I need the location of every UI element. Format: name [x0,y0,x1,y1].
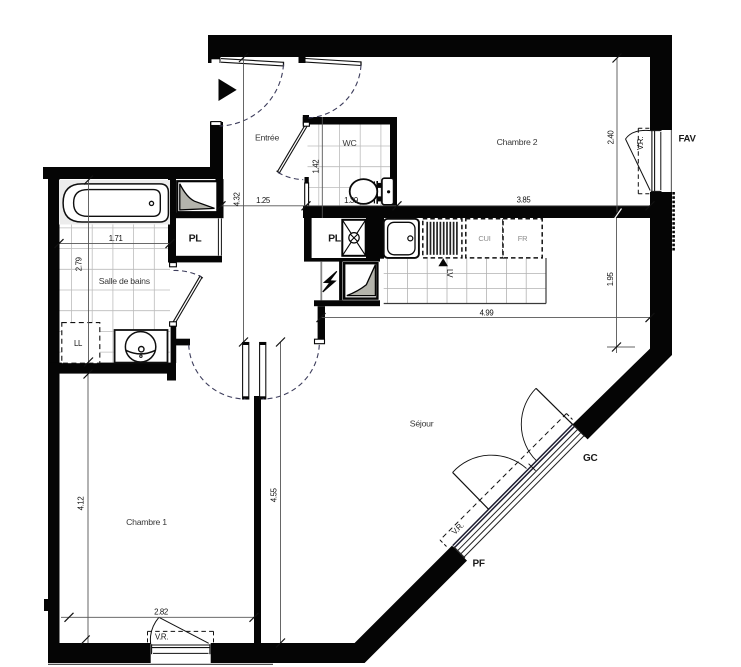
svg-text:WC: WC [343,138,357,148]
svg-text:PF: PF [473,559,485,570]
svg-text:Chambre 1: Chambre 1 [126,517,167,527]
svg-text:Salle de bains: Salle de bains [99,276,151,286]
svg-text:LL: LL [74,339,83,348]
svg-text:1.42: 1.42 [312,160,321,174]
svg-text:PL: PL [328,233,342,245]
svg-text:2.40: 2.40 [606,130,615,145]
svg-text:Séjour: Séjour [410,419,434,429]
svg-text:2.79: 2.79 [74,257,83,271]
svg-text:3.85: 3.85 [517,196,532,205]
svg-text:FR: FR [518,234,528,243]
svg-text:LV: LV [445,269,454,278]
svg-text:4.12: 4.12 [77,497,86,511]
svg-text:PL: PL [189,233,203,245]
svg-text:V.R.: V.R. [155,632,168,641]
svg-text:4.99: 4.99 [480,308,494,317]
svg-text:GC: GC [583,453,597,464]
svg-text:CUI: CUI [478,234,490,243]
svg-text:Entrée: Entrée [255,133,280,143]
svg-text:V.R.: V.R. [636,137,645,150]
svg-text:1.95: 1.95 [606,272,615,287]
svg-text:4.32: 4.32 [233,193,242,207]
svg-text:1.71: 1.71 [109,234,123,243]
svg-text:FAV: FAV [679,134,697,145]
svg-text:Chambre 2: Chambre 2 [497,137,538,147]
svg-text:2.82: 2.82 [154,607,168,616]
svg-text:1.39: 1.39 [344,196,358,205]
svg-text:1.25: 1.25 [256,196,271,205]
svg-text:4.55: 4.55 [270,487,279,502]
